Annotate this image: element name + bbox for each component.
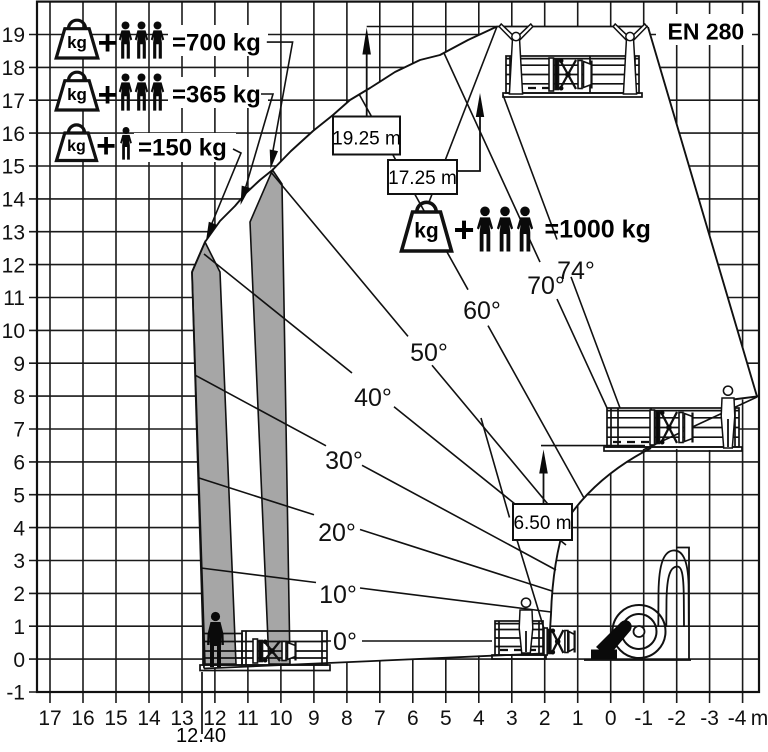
svg-text:16: 16 xyxy=(71,707,94,730)
svg-text:14: 14 xyxy=(2,189,26,212)
svg-text:12: 12 xyxy=(2,254,25,277)
svg-text:18: 18 xyxy=(2,57,25,80)
svg-text:17: 17 xyxy=(2,90,25,113)
svg-text:6.50 m: 6.50 m xyxy=(513,513,571,534)
svg-text:13: 13 xyxy=(2,221,25,244)
svg-text:50°: 50° xyxy=(410,339,448,367)
svg-text:19.25 m: 19.25 m xyxy=(332,129,401,150)
svg-text:5: 5 xyxy=(13,484,25,507)
svg-text:=150 kg: =150 kg xyxy=(138,135,227,162)
svg-text:2: 2 xyxy=(539,707,551,730)
svg-text:30°: 30° xyxy=(325,447,363,475)
svg-text:10: 10 xyxy=(2,320,25,343)
svg-text:0: 0 xyxy=(13,649,25,672)
svg-text:=365 kg: =365 kg xyxy=(172,82,261,109)
svg-text:9: 9 xyxy=(308,707,320,730)
svg-text:0: 0 xyxy=(605,707,617,730)
svg-text:-1: -1 xyxy=(634,707,653,730)
svg-text:17.25 m: 17.25 m xyxy=(388,168,457,189)
svg-text:3: 3 xyxy=(506,707,518,730)
svg-text:12.40: 12.40 xyxy=(176,725,226,747)
svg-text:=700 kg: =700 kg xyxy=(172,30,261,57)
svg-text:17: 17 xyxy=(38,707,61,730)
svg-text:8: 8 xyxy=(341,707,353,730)
svg-text:=1000 kg: =1000 kg xyxy=(545,216,651,244)
svg-text:74°: 74° xyxy=(557,257,595,285)
svg-text:-2: -2 xyxy=(667,707,686,730)
svg-text:+: + xyxy=(96,127,116,165)
svg-text:kg: kg xyxy=(67,33,87,52)
svg-text:+: + xyxy=(98,76,118,114)
svg-text:20°: 20° xyxy=(318,519,356,547)
svg-text:11: 11 xyxy=(237,707,259,730)
svg-text:15: 15 xyxy=(2,156,25,179)
svg-text:3: 3 xyxy=(13,550,25,573)
svg-text:5: 5 xyxy=(440,707,452,730)
svg-text:10: 10 xyxy=(269,707,292,730)
svg-text:19: 19 xyxy=(2,24,25,47)
svg-text:1: 1 xyxy=(13,616,25,639)
svg-text:0°: 0° xyxy=(333,628,357,656)
svg-text:-3: -3 xyxy=(700,707,719,730)
svg-text:40°: 40° xyxy=(354,384,392,412)
svg-text:14: 14 xyxy=(137,707,161,730)
svg-text:15: 15 xyxy=(104,707,127,730)
svg-text:7: 7 xyxy=(13,419,25,442)
svg-text:10°: 10° xyxy=(319,581,357,609)
svg-text:8: 8 xyxy=(13,386,25,409)
svg-text:1: 1 xyxy=(572,707,584,730)
svg-text:4: 4 xyxy=(473,707,485,730)
svg-text:6: 6 xyxy=(407,707,419,730)
svg-text:6: 6 xyxy=(13,452,25,475)
svg-text:kg: kg xyxy=(414,220,439,243)
svg-text:7: 7 xyxy=(374,707,386,730)
svg-text:kg: kg xyxy=(67,138,86,155)
svg-text:4: 4 xyxy=(13,517,25,540)
svg-text:m: m xyxy=(751,707,768,730)
svg-text:11: 11 xyxy=(3,287,25,310)
svg-text:-4: -4 xyxy=(728,707,747,730)
svg-text:+: + xyxy=(453,209,474,250)
svg-text:2: 2 xyxy=(13,583,25,606)
svg-text:+: + xyxy=(98,24,118,62)
svg-text:60°: 60° xyxy=(463,297,501,325)
svg-text:9: 9 xyxy=(13,353,25,376)
svg-text:-1: -1 xyxy=(6,682,25,705)
svg-text:EN 280: EN 280 xyxy=(668,19,745,45)
svg-text:kg: kg xyxy=(67,85,87,104)
svg-text:16: 16 xyxy=(2,123,25,146)
